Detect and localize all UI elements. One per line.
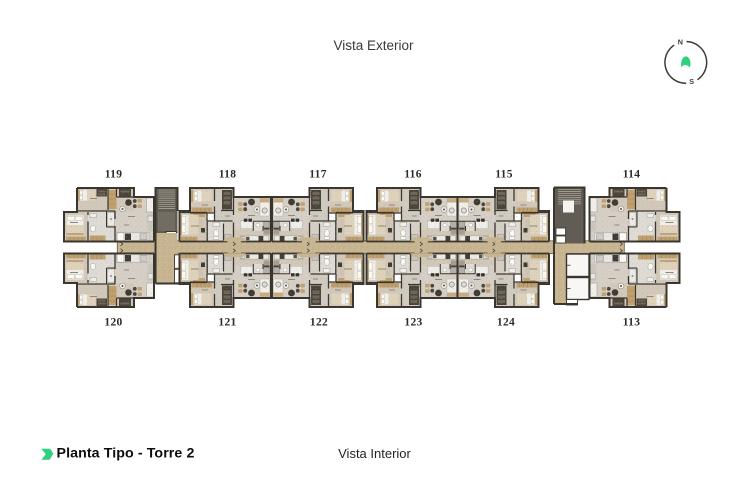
svg-text:116: 116 (404, 169, 422, 181)
svg-text:122: 122 (310, 317, 328, 329)
svg-text:115: 115 (495, 169, 513, 181)
svg-text:118: 118 (219, 169, 237, 181)
svg-text:S: S (689, 77, 694, 86)
svg-text:119: 119 (105, 169, 123, 181)
svg-text:120: 120 (104, 317, 122, 329)
svg-text:114: 114 (623, 169, 641, 181)
svg-text:Vista Exterior: Vista Exterior (333, 38, 414, 53)
svg-text:117: 117 (309, 169, 327, 181)
svg-text:Planta Tipo - Torre 2: Planta Tipo - Torre 2 (57, 445, 195, 461)
svg-text:N: N (678, 38, 683, 47)
svg-text:123: 123 (404, 317, 422, 329)
svg-text:124: 124 (497, 317, 515, 329)
svg-text:121: 121 (218, 317, 236, 329)
svg-text:Vista Interior: Vista Interior (338, 446, 411, 461)
svg-text:113: 113 (623, 317, 641, 329)
